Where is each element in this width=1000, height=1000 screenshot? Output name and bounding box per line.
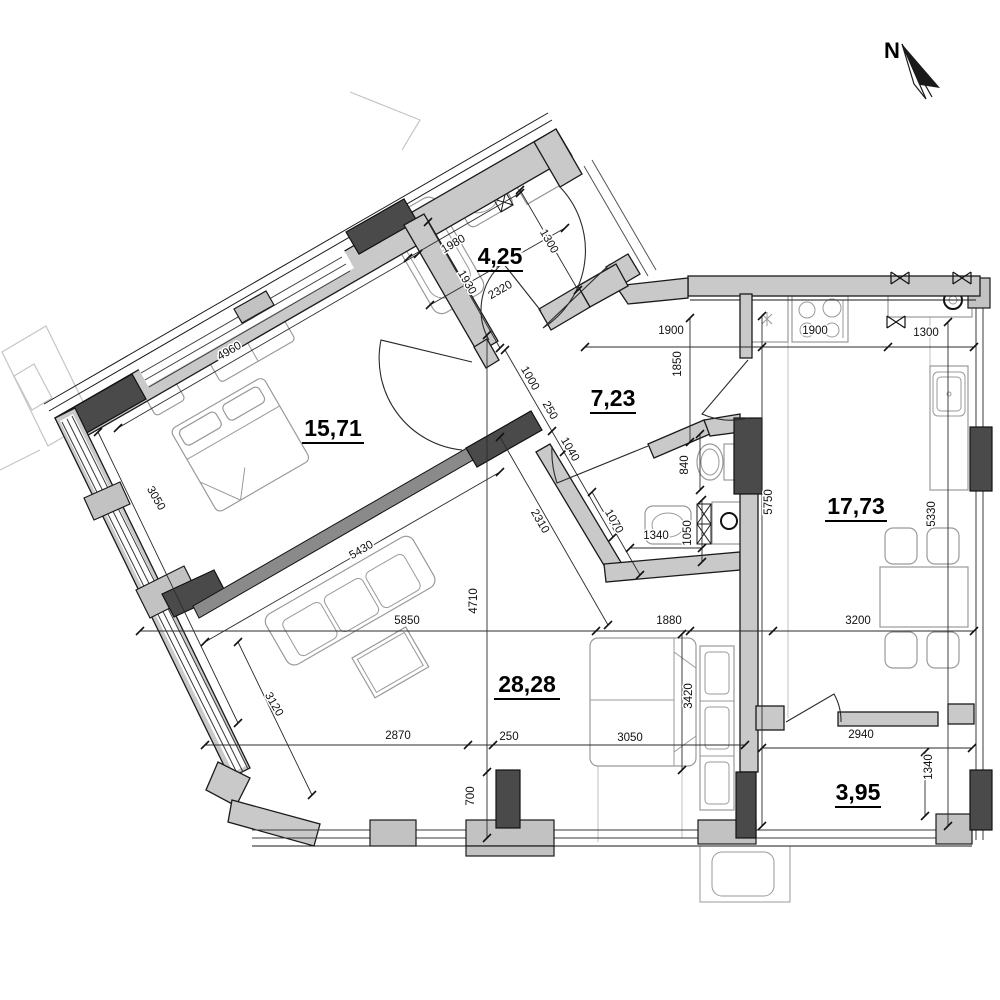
dimension-tick: [234, 638, 242, 646]
double-bed-bedroom: [170, 377, 311, 514]
dimension-label: 1850: [672, 351, 684, 377]
exterior-wall-north-kitchen: [688, 276, 980, 300]
dimension-label: 1050: [682, 520, 694, 546]
wardrobe: [700, 646, 734, 810]
dimension-label: 1340: [923, 754, 935, 780]
dimension-label: 3200: [845, 615, 871, 627]
room-area-label-balcony: 3,95: [836, 779, 881, 805]
dimension-tick: [496, 468, 504, 476]
dimension-label: 3050: [144, 484, 167, 512]
dimension-label: 2320: [486, 279, 514, 302]
room-area-label-hallway: 7,23: [591, 385, 636, 411]
dimension-tick: [496, 344, 504, 352]
room-area-label-living-room: 28,28: [498, 671, 556, 697]
dimension-label: 1900: [802, 325, 828, 337]
dimension-tick: [604, 621, 612, 629]
dimension-tick: [114, 424, 122, 432]
room-area-label-kitchen: 17,73: [827, 493, 885, 519]
floor-plan-canvas: 1980130023201930496030505430100025010402…: [0, 0, 1000, 1000]
dimension-label: 3420: [683, 683, 695, 709]
dimension-label: 3120: [262, 690, 285, 718]
dimension-label: 1040: [558, 435, 581, 463]
dimension-tick: [501, 346, 509, 354]
kitchen-sink-counter: [930, 366, 968, 490]
dimension-label: 2870: [385, 730, 411, 742]
dimension-label: 4710: [468, 588, 480, 614]
dimension-label: 2310: [528, 507, 551, 535]
dimension-label: 700: [465, 786, 477, 805]
toilet: [697, 444, 734, 480]
dimension-label: 1300: [913, 327, 939, 339]
dimension-label: 5850: [394, 615, 420, 627]
dimension-tick: [561, 224, 569, 232]
dimension-label: 250: [540, 399, 560, 422]
room-area-label-bathroom: 4,25: [478, 243, 523, 269]
floor-plan-page: 1980130023201930496030505430100025010402…: [0, 0, 1000, 1000]
dimension-label: 250: [499, 731, 518, 743]
column: [496, 770, 520, 828]
dimension-tick: [548, 427, 556, 435]
exterior-wall-east: [968, 278, 992, 840]
north-label: N: [884, 38, 900, 63]
dimension-tick: [234, 719, 242, 727]
north-arrow: N: [884, 38, 940, 99]
wall-bathroom-hall: [474, 264, 628, 368]
coffee-table: [352, 627, 429, 698]
room-area-label-bedroom: 15,71: [304, 415, 362, 441]
vent-shaft-wc: [697, 504, 711, 544]
lower-neighbor-balcony: [700, 846, 790, 902]
dimension-label: 5330: [926, 501, 938, 527]
kitchen-door: [702, 360, 748, 420]
double-bed-living: [590, 638, 696, 766]
dimension-label: 3050: [617, 732, 643, 744]
balcony-door: [786, 694, 841, 722]
dimension-label: 2940: [848, 729, 874, 741]
dimension-label: 840: [679, 455, 691, 474]
wall-kitchen-balcony: [756, 704, 974, 730]
dimension-label: 1340: [643, 530, 669, 542]
dimension-label: 5750: [763, 489, 775, 515]
dimension-tick: [201, 638, 209, 646]
exterior-wall-north-west: [44, 113, 572, 445]
dimension-label: 1070: [602, 507, 625, 535]
dimension-tick: [308, 791, 316, 799]
bedroom-door: [379, 340, 472, 450]
exterior-wall-corner-sw: [206, 762, 320, 846]
dimension-label: 1900: [658, 325, 684, 337]
dimension-tick: [588, 488, 596, 496]
dining-table: [880, 567, 968, 627]
dimension-label: 1880: [656, 615, 682, 627]
